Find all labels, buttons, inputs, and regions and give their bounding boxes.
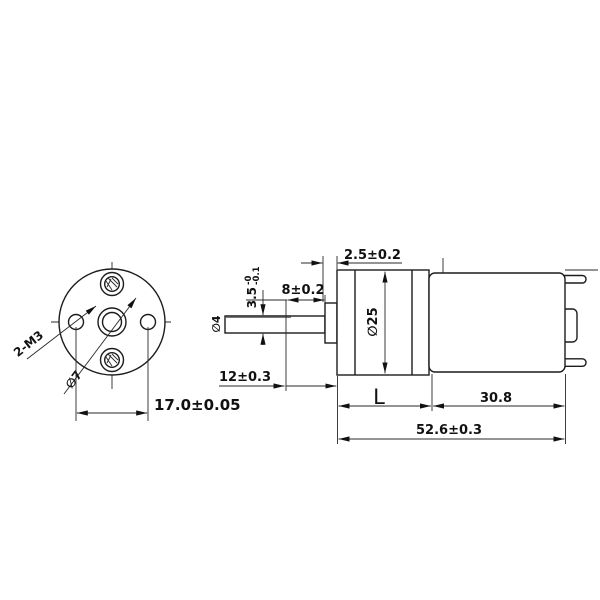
drawing-svg: 2-M3 ∅7 17.0±0.05 2.5±0.2 (0, 0, 600, 600)
flat-height-tol-lower: -0.1 (252, 266, 262, 285)
thread-label: 2-M3 (11, 328, 46, 360)
gearbox-length-label: L (373, 385, 385, 409)
technical-drawing-gear-motor: 2-M3 ∅7 17.0±0.05 2.5±0.2 (0, 0, 600, 600)
front-view: 2-M3 ∅7 17.0±0.05 (11, 262, 241, 421)
shaft-dia-label: ∅4 (210, 315, 223, 332)
mount-spacing-label: 17.0±0.05 (154, 396, 241, 414)
flat-length-label: 8±0.2 (282, 283, 325, 298)
motor-body (429, 273, 565, 372)
flat-height-label-group: 3.5 -0 -0.1 (244, 266, 262, 308)
output-shaft (225, 316, 325, 333)
screw-top-outer (101, 273, 124, 296)
shaft-length-label: 12±0.3 (219, 370, 271, 385)
screw-bottom-outer (101, 349, 124, 372)
flat-height-label: 3.5 (245, 287, 259, 308)
gearbox-body (337, 270, 429, 375)
total-length-label: 52.6±0.3 (416, 423, 482, 438)
front-boss (325, 303, 337, 343)
motor-length-label: 30.8 (480, 391, 512, 406)
body-dia-label: ∅25 (366, 307, 381, 336)
shaft-hole-dia-label: ∅7 (63, 368, 85, 391)
side-view: 2.5±0.2 8±0.2 3.5 -0 -0.1 ∅4 ∅25 12±0.3 … (210, 248, 598, 444)
boss-width-label: 2.5±0.2 (344, 248, 401, 263)
